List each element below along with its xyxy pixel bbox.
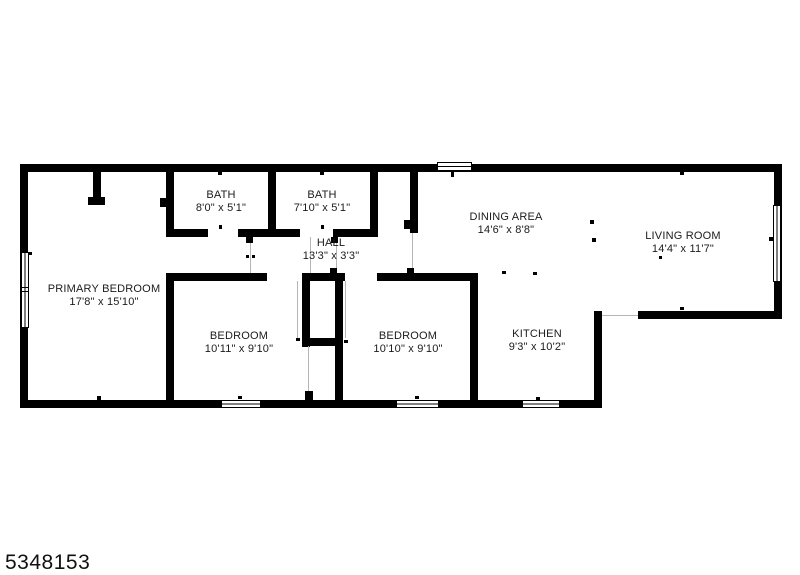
room-name: BATH <box>196 189 246 202</box>
room-label-hall: HALL 13'3" x 3'3" <box>303 237 360 263</box>
window-right <box>774 206 781 282</box>
room-dims: 14'4" x 11'7" <box>645 243 721 256</box>
room-label-bedroom-left: BEDROOM 10'11" x 9'10" <box>205 330 273 356</box>
room-dims: 10'11" x 9'10" <box>205 343 273 356</box>
window-top <box>438 163 472 171</box>
room-label-living-room: LIVING ROOM 14'4" x 11'7" <box>645 230 721 256</box>
room-dims: 13'3" x 3'3" <box>303 250 360 263</box>
room-dims: 7'10" x 5'1" <box>294 202 351 215</box>
room-label-primary-bedroom: PRIMARY BEDROOM 17'8" x 15'10" <box>48 283 161 309</box>
room-name: DINING AREA <box>469 211 542 224</box>
window-bottom-2 <box>397 401 439 408</box>
room-dims: 14'6" x 8'8" <box>469 224 542 237</box>
room-label-bath-2: BATH 7'10" x 5'1" <box>294 189 351 215</box>
room-dims: 9'3" x 10'2" <box>509 341 566 354</box>
room-name: BEDROOM <box>373 330 442 343</box>
room-dims: 8'0" x 5'1" <box>196 202 246 215</box>
room-label-bedroom-right: BEDROOM 10'10" x 9'10" <box>373 330 442 356</box>
window-left <box>22 253 29 328</box>
room-label-dining-area: DINING AREA 14'6" x 8'8" <box>469 211 542 237</box>
window-bottom-1 <box>222 401 261 408</box>
room-name: PRIMARY BEDROOM <box>48 283 161 296</box>
room-name: KITCHEN <box>509 328 566 341</box>
room-name: HALL <box>303 237 360 250</box>
listing-number: 5348153 <box>5 551 90 575</box>
room-dims: 17'8" x 15'10" <box>48 296 161 309</box>
floorplan-page: PRIMARY BEDROOM 17'8" x 15'10" BATH 8'0"… <box>0 0 800 575</box>
room-label-kitchen: KITCHEN 9'3" x 10'2" <box>509 328 566 354</box>
room-name: BATH <box>294 189 351 202</box>
window-bottom-3 <box>523 401 560 408</box>
room-name: BEDROOM <box>205 330 273 343</box>
room-dims: 10'10" x 9'10" <box>373 343 442 356</box>
room-label-bath-1: BATH 8'0" x 5'1" <box>196 189 246 215</box>
room-name: LIVING ROOM <box>645 230 721 243</box>
